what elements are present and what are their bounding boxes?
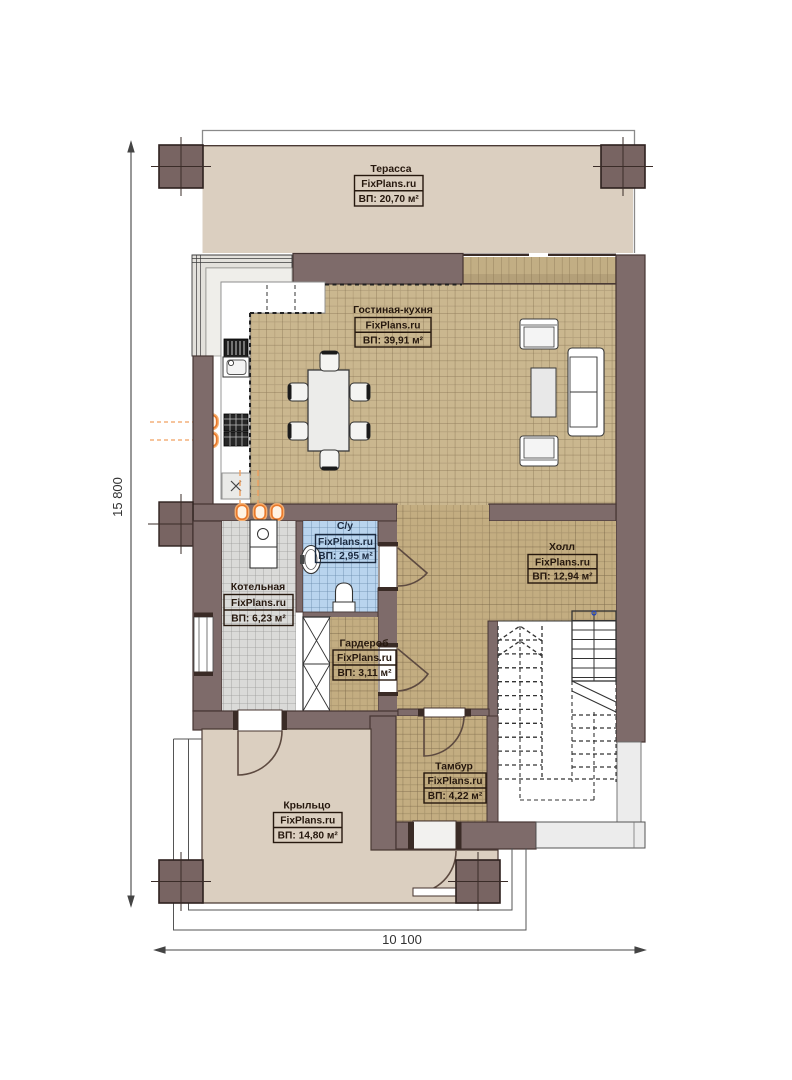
svg-text:ВП: 6,23 м²: ВП: 6,23 м²	[231, 614, 286, 625]
svg-text:FixPlans.ru: FixPlans.ru	[535, 557, 590, 568]
svg-text:Котельная: Котельная	[231, 582, 285, 593]
svg-text:ВП: 3,11 м²: ВП: 3,11 м²	[338, 668, 393, 679]
svg-text:Терасса: Терасса	[370, 164, 411, 175]
svg-text:FixPlans.ru: FixPlans.ru	[318, 537, 373, 548]
svg-text:Тамбур: Тамбур	[435, 761, 473, 773]
svg-text:ВП: 2,95 м²: ВП: 2,95 м²	[318, 551, 373, 562]
svg-text:FixPlans.ru: FixPlans.ru	[231, 598, 286, 609]
svg-text:FixPlans.ru: FixPlans.ru	[337, 653, 392, 664]
svg-text:FixPlans.ru: FixPlans.ru	[280, 816, 335, 827]
svg-text:FixPlans.ru: FixPlans.ru	[366, 321, 421, 332]
svg-text:ВП: 20,70 м²: ВП: 20,70 м²	[359, 194, 420, 205]
svg-text:Крыльцо: Крыльцо	[283, 801, 330, 812]
svg-text:Гостиная-кухня: Гостиная-кухня	[353, 305, 433, 316]
svg-text:ВП: 4,22 м²: ВП: 4,22 м²	[428, 791, 483, 802]
svg-text:ВП: 39,91 м²: ВП: 39,91 м²	[363, 335, 424, 346]
svg-text:FixPlans.ru: FixPlans.ru	[428, 776, 483, 787]
svg-text:10 100: 10 100	[382, 932, 422, 947]
svg-text:ВП: 14,80 м²: ВП: 14,80 м²	[278, 831, 339, 842]
svg-text:FixPlans.ru: FixPlans.ru	[361, 179, 416, 190]
svg-text:Холл: Холл	[549, 542, 575, 553]
svg-text:Гардероб: Гардероб	[339, 638, 388, 650]
svg-text:15 800: 15 800	[110, 477, 125, 517]
svg-text:ВП: 12,94 м²: ВП: 12,94 м²	[532, 572, 593, 583]
svg-text:С/у: С/у	[337, 521, 353, 532]
